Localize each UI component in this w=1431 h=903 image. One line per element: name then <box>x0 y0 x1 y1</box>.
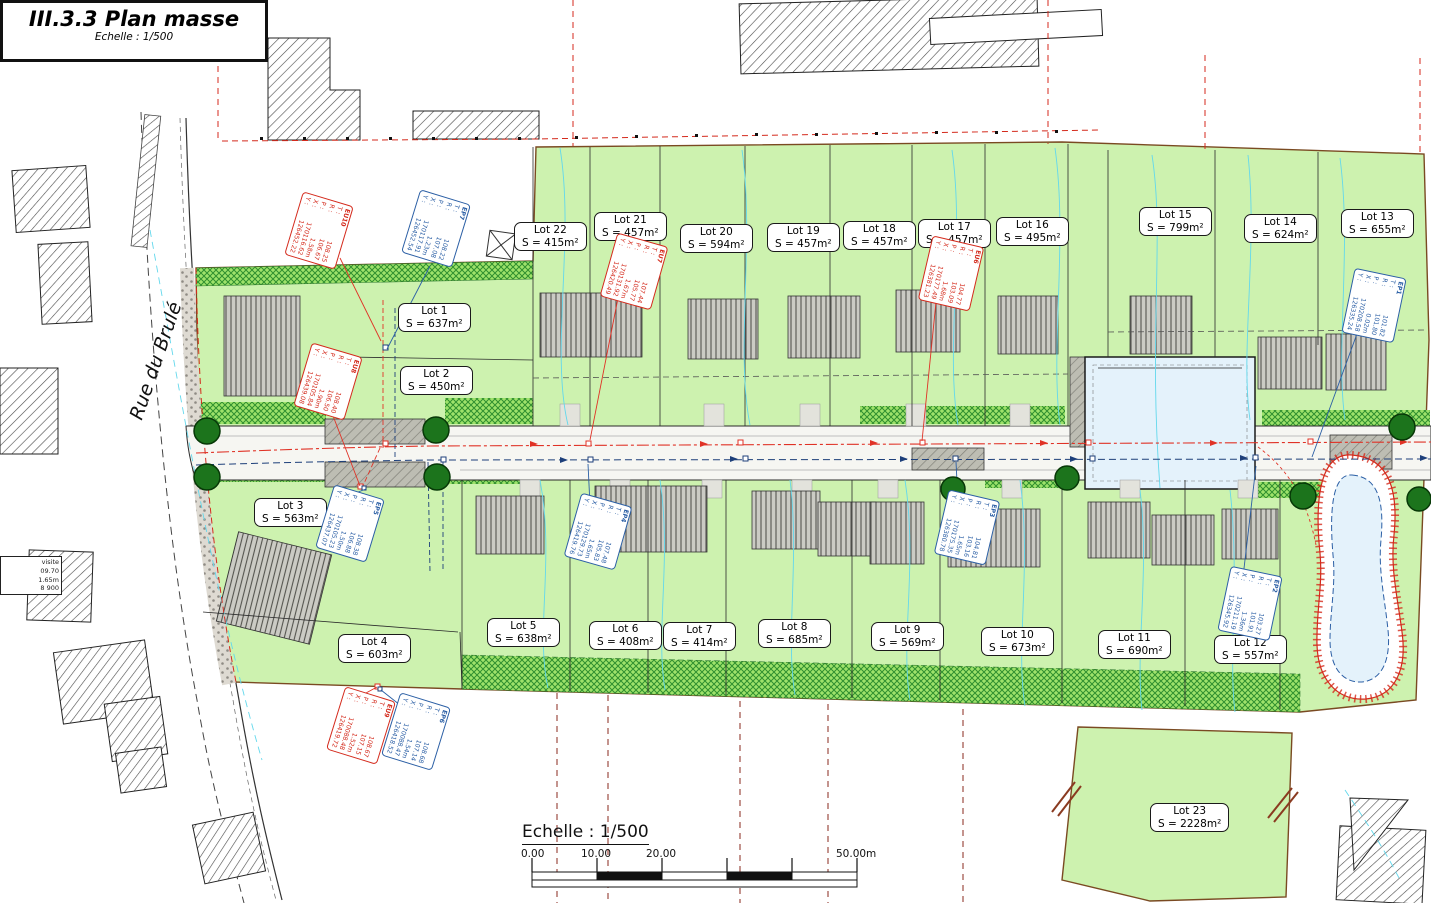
retention-basin <box>1085 357 1255 489</box>
crossed-square-symbol <box>486 230 515 259</box>
plan-graphics <box>0 0 1431 903</box>
site-plan-drawing: Lot 1 S = 637m² Lot 2 S = 450m² Lot 3 S … <box>0 0 1431 903</box>
infiltration-basin <box>1317 455 1403 699</box>
scale-bar <box>532 858 857 887</box>
